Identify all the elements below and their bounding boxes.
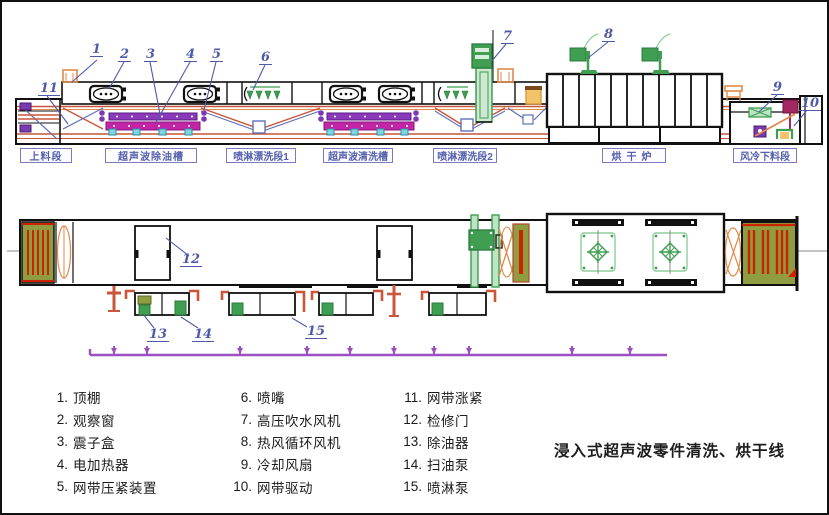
top-view [16, 30, 822, 144]
legend-label: 冷却风扇 [257, 454, 313, 474]
observation-window [379, 86, 415, 102]
legend-item: 15.喷淋泵 [396, 476, 483, 498]
legend-label: 热风循环风机 [257, 432, 341, 452]
callout-15: 15 [305, 325, 327, 339]
spray-pump [432, 303, 443, 315]
callout-6: 6 [259, 51, 272, 65]
pump-group-2 [229, 293, 295, 315]
inspection-door [135, 226, 170, 280]
legend-label: 观察窗 [73, 410, 115, 430]
legend-label: 扫油泵 [427, 454, 469, 474]
callout-2: 2 [118, 48, 131, 62]
red-pipe [387, 285, 401, 316]
callout-13: 13 [147, 328, 169, 342]
barrel [525, 86, 542, 104]
legend-label: 顶棚 [73, 387, 101, 407]
circulation-fan [642, 34, 670, 74]
legend-num: 4. [42, 457, 68, 472]
legend-item: 11.网带涨紧 [396, 386, 483, 408]
legend-column-1: 1.顶棚 2.观察窗 3.震子盒 4.电加热器 5.网带压紧装置 [42, 386, 157, 498]
legend-num: 8. [226, 434, 252, 449]
legend-item: 3.震子盒 [42, 431, 157, 453]
load-panel [22, 222, 54, 283]
legend-label: 网带驱动 [257, 477, 313, 497]
oil-sweep-pump [175, 301, 186, 315]
legend-item: 5.网带压紧装置 [42, 476, 157, 498]
legend-num: 11. [396, 390, 422, 405]
drying-oven-plan [547, 214, 724, 292]
legend-item: 12.检修门 [396, 408, 483, 430]
callout-8: 8 [602, 28, 615, 42]
legend-num: 9. [226, 457, 252, 472]
callout-10: 10 [799, 97, 821, 111]
observation-window [184, 86, 220, 102]
callout-4: 4 [184, 48, 197, 62]
legend-label: 网带压紧装置 [73, 477, 157, 497]
legend-label: 除油器 [427, 432, 469, 452]
transducer-bar [109, 113, 197, 120]
legend-column-3: 11.网带涨紧 12.检修门 13.除油器 14.扫油泵 15.喷淋泵 [396, 386, 483, 498]
pump-group-3 [319, 293, 373, 315]
legend-num: 2. [42, 412, 68, 427]
pump-group-1 [135, 293, 189, 315]
cabinet-row [62, 82, 547, 104]
legend-num: 7. [226, 412, 252, 427]
transducer-bar [327, 113, 411, 120]
legend-label: 检修门 [427, 410, 469, 430]
cooling-fan [749, 108, 771, 117]
legend-item: 14.扫油泵 [396, 453, 483, 475]
section-label-clean-tank: 超声波清洗槽 [323, 148, 393, 163]
callout-3: 3 [144, 48, 157, 62]
legend-num: 6. [226, 390, 252, 405]
legend-item: 1.顶棚 [42, 386, 157, 408]
stand [725, 86, 742, 91]
drain-box [253, 121, 265, 133]
pump-assemblies [107, 285, 495, 316]
legend-label: 网带涨紧 [427, 387, 483, 407]
inspection-door [377, 226, 412, 280]
legend-item: 7.高压吹水风机 [226, 408, 341, 430]
pump-group-4 [429, 293, 486, 315]
section-label-rinse-1: 喷淋漂洗段1 [226, 148, 296, 163]
callout-9: 9 [771, 81, 784, 95]
callout-11: 11 [38, 82, 60, 96]
legend-num: 5. [42, 479, 68, 494]
red-pipe [107, 286, 121, 312]
oil-remover [138, 296, 151, 304]
drain-box [523, 115, 533, 124]
legend-item: 9.冷却风扇 [226, 453, 341, 475]
spray-pump [232, 303, 243, 315]
drain-box [461, 119, 473, 131]
diagram-page: 1 2 3 4 5 6 7 8 9 10 11 12 13 14 15 上料段 … [0, 0, 829, 515]
drying-oven [547, 74, 722, 143]
legend-num: 1. [42, 390, 68, 405]
legend-num: 13. [396, 434, 422, 449]
plan-view [7, 214, 827, 355]
legend-column-2: 6.喷嘴 7.高压吹水风机 8.热风循环风机 9.冷却风扇 10.网带驱动 [226, 386, 341, 498]
oil-sweep-pump [139, 305, 150, 315]
section-label-unload: 风冷下料段 [733, 148, 797, 163]
legend-label: 震子盒 [73, 432, 115, 452]
legend-num: 3. [42, 434, 68, 449]
legend-label: 喷淋泵 [427, 477, 469, 497]
legend-label: 高压吹水风机 [257, 410, 341, 430]
callout-12: 12 [180, 253, 202, 267]
legend-item: 6.喷嘴 [226, 386, 341, 408]
callout-1: 1 [90, 43, 103, 57]
legend-num: 15. [396, 479, 422, 494]
diagram-title: 浸入式超声波零件清洗、烘干线 [554, 439, 826, 461]
tension-roller [20, 103, 31, 110]
legend-item: 10.网带驱动 [226, 476, 341, 498]
legend-item: 13.除油器 [396, 431, 483, 453]
legend-item: 4.电加热器 [42, 453, 157, 475]
legend-item: 8.热风循环风机 [226, 431, 341, 453]
legend-num: 12. [396, 412, 422, 427]
legend-num: 14. [396, 457, 422, 472]
section-label-loading: 上料段 [20, 148, 72, 163]
callout-7: 7 [501, 30, 514, 44]
callout-5: 5 [210, 48, 223, 62]
section-label-rinse-2: 喷淋漂洗段2 [433, 148, 497, 163]
section-label-oven: 烘干炉 [602, 148, 666, 163]
tension-roller [20, 125, 31, 132]
callout-14: 14 [192, 328, 214, 342]
manifold-pipe [90, 346, 667, 355]
legend-num: 10. [226, 479, 252, 494]
observation-window [90, 86, 126, 102]
legend-item: 2.观察窗 [42, 408, 157, 430]
legend-label: 喷嘴 [257, 387, 285, 407]
legend-label: 电加热器 [73, 454, 129, 474]
section-label-degrease-tank: 超声波除油槽 [105, 148, 197, 163]
spray-pump [322, 303, 333, 315]
observation-window [330, 86, 366, 102]
